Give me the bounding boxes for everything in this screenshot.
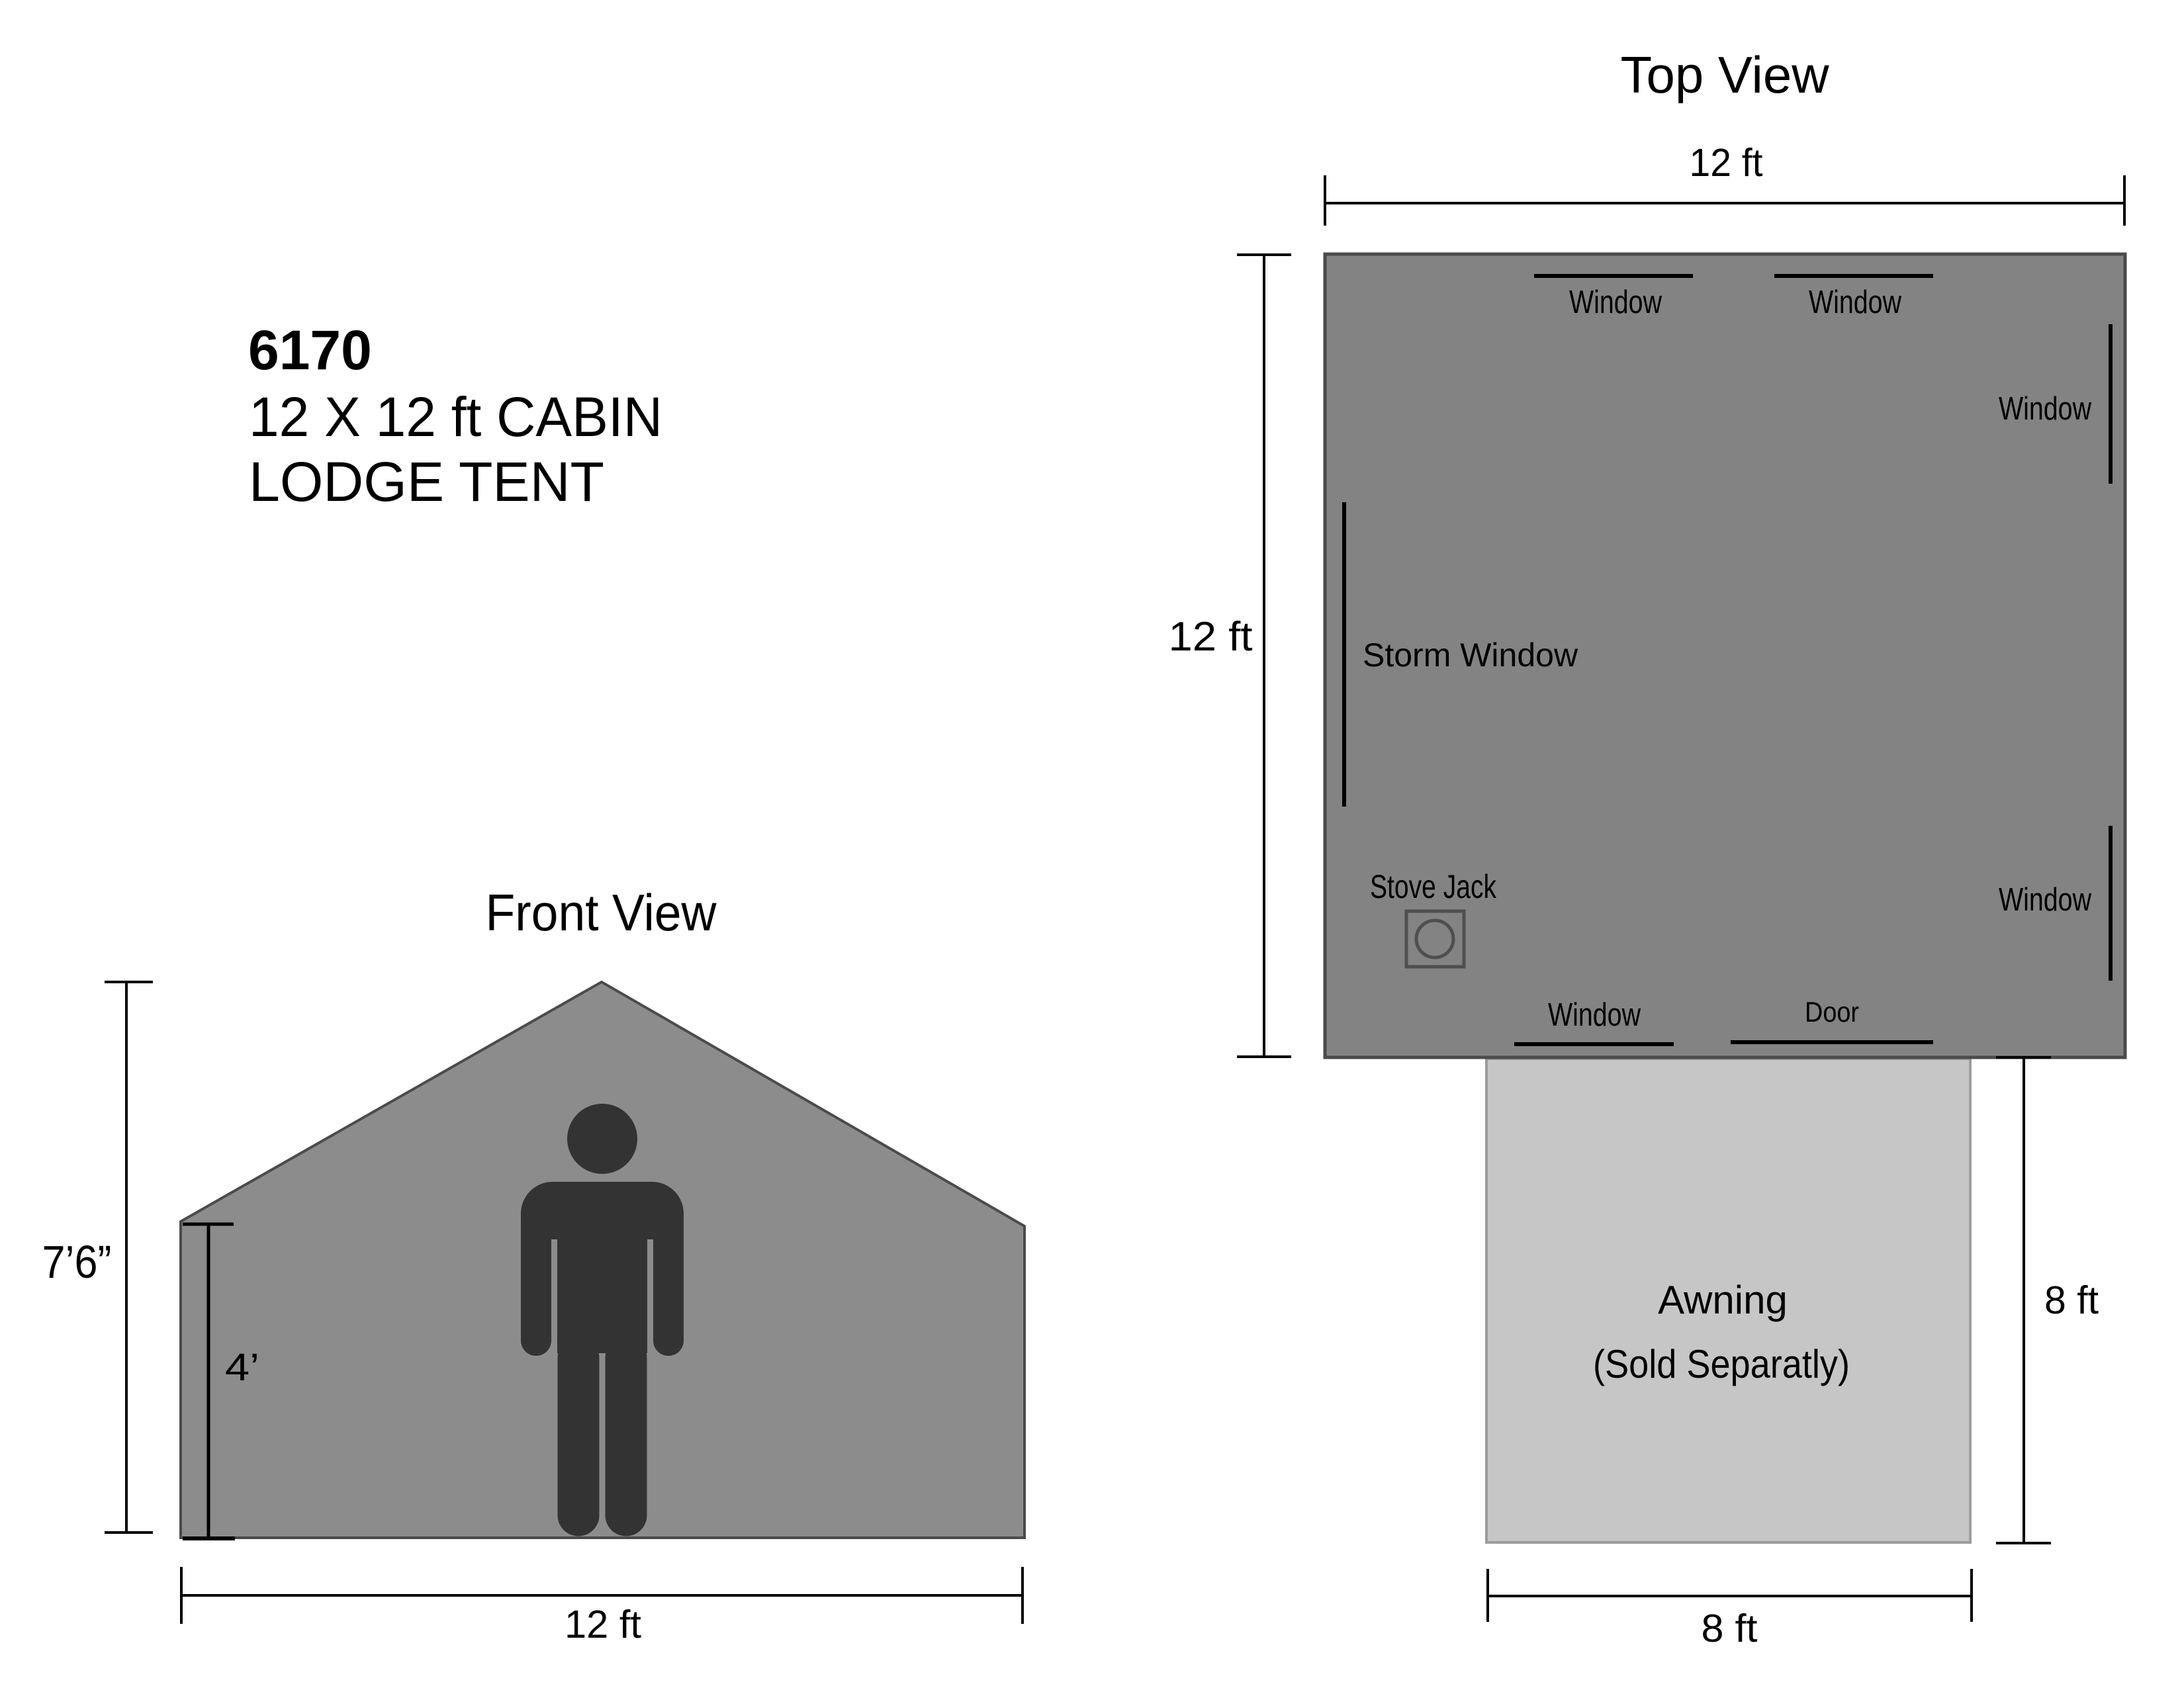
svg-text:Window: Window	[1999, 391, 2091, 427]
svg-text:Door: Door	[1805, 997, 1859, 1028]
svg-text:12 ft: 12 ft	[1690, 141, 1763, 185]
svg-text:Front View: Front View	[486, 883, 717, 942]
svg-text:Window: Window	[1809, 285, 1901, 320]
svg-text:8 ft: 8 ft	[2044, 1278, 2099, 1322]
svg-text:Top View: Top View	[1620, 46, 1829, 104]
svg-text:12 X 12 ft CABIN: 12 X 12 ft CABIN	[249, 386, 662, 448]
svg-text:6170: 6170	[248, 319, 372, 381]
svg-text:Awning: Awning	[1658, 1278, 1788, 1322]
svg-text:Window: Window	[1999, 882, 2091, 918]
svg-text:7’6”: 7’6”	[42, 1236, 112, 1288]
svg-text:8 ft: 8 ft	[1702, 1607, 1758, 1650]
svg-text:(Sold Separatly): (Sold Separatly)	[1593, 1342, 1850, 1386]
svg-text:4’: 4’	[225, 1346, 259, 1389]
svg-text:Storm Window: Storm Window	[1363, 637, 1578, 674]
svg-text:12 ft: 12 ft	[565, 1603, 641, 1646]
svg-text:LODGE TENT: LODGE TENT	[249, 451, 604, 513]
svg-text:Window: Window	[1548, 997, 1641, 1033]
svg-text:Stove Jack: Stove Jack	[1370, 868, 1497, 905]
svg-text:Window: Window	[1569, 285, 1662, 320]
svg-text:12 ft: 12 ft	[1169, 614, 1253, 660]
